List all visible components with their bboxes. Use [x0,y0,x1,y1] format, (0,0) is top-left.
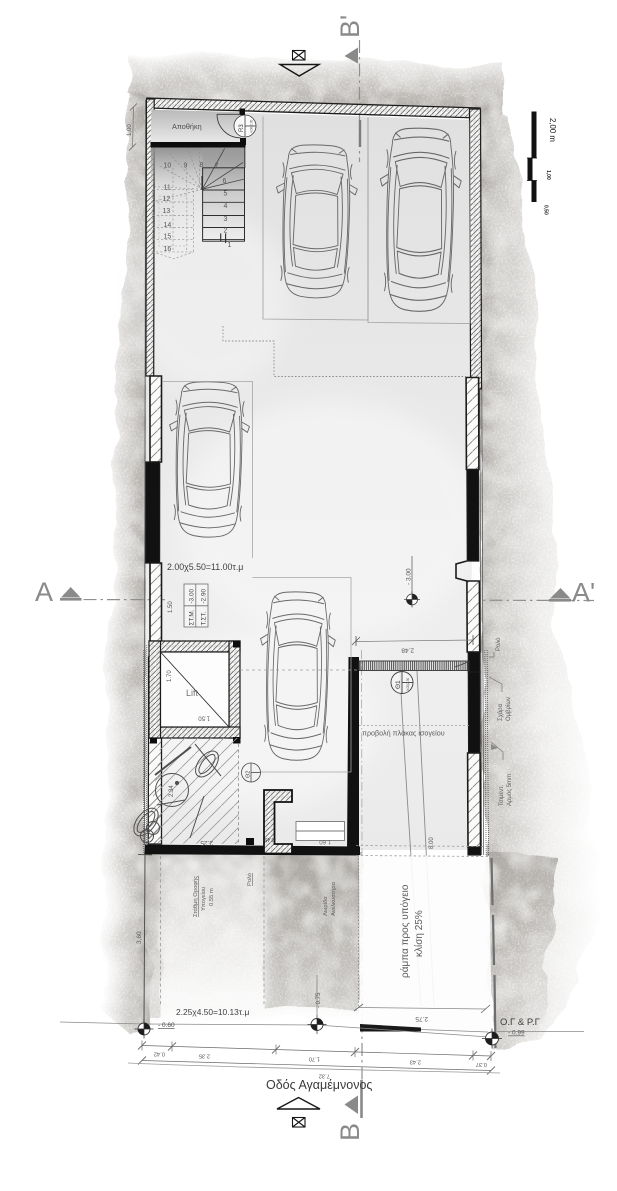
svg-text:-3.00: -3.00 [189,588,196,603]
svg-text:5: 5 [224,191,228,198]
svg-text:Τσιμεντ.: Τσιμεντ. [499,784,505,806]
svg-text:1,00: 1,00 [545,170,551,180]
svg-text:Υπογείου: Υπογείου [201,887,207,911]
svg-text:- 0.99: - 0.99 [508,1030,525,1037]
svg-text:R3: R3 [239,124,245,132]
svg-text:2.43: 2.43 [410,1059,421,1065]
svg-text:1.50: 1.50 [198,715,210,721]
svg-text:10: 10 [164,163,172,170]
svg-text:8: 8 [200,162,204,169]
svg-text:2.35: 2.35 [199,1053,210,1059]
svg-text:1.70: 1.70 [167,670,173,682]
svg-text:2,00 m: 2,00 m [548,118,557,142]
svg-text:7: 7 [215,163,219,170]
svg-text:- 3.00: - 3.00 [406,568,413,585]
svg-text:0,50: 0,50 [543,205,549,215]
svg-text:8.00: 8.00 [429,837,435,849]
svg-text:κλίση 25%: κλίση 25% [413,910,425,957]
svg-text:-0.45: -0.45 [264,836,276,842]
svg-text:2.25χ4.50=10.13τ.μ: 2.25χ4.50=10.13τ.μ [176,1007,249,1017]
svg-text:ράμπα προς υπόγειο: ράμπα προς υπόγειο [399,884,411,978]
svg-text:13: 13 [163,208,171,215]
svg-text:Ρολό: Ρολό [495,637,502,651]
svg-text:2: 2 [224,228,228,235]
svg-text:2.00χ5.50=11.00τ.μ: 2.00χ5.50=11.00τ.μ [167,562,243,572]
svg-text:Ομβρίων: Ομβρίων [506,697,512,721]
svg-text:προβολή πλάκας ισογείου: προβολή πλάκας ισογείου [362,729,445,738]
svg-text:Ρολό: Ρολό [246,873,253,886]
svg-text:15: 15 [164,234,172,241]
svg-text:14: 14 [164,222,172,229]
svg-text:Οδός Αγαμέμνονος: Οδός Αγαμέμνονος [266,1078,372,1092]
svg-text:Αποθήκη: Αποθήκη [172,122,202,131]
svg-text:0.55 m: 0.55 m [209,888,215,906]
svg-text:3: 3 [224,216,228,223]
svg-text:Lift: Lift [186,688,199,698]
svg-text:16: 16 [164,246,172,253]
svg-text:Αρμός 5mm: Αρμός 5mm [506,774,513,806]
svg-text:4: 4 [224,203,228,210]
svg-text:9: 9 [184,163,188,170]
svg-text:11: 11 [164,185,171,192]
svg-text:6: 6 [223,178,227,185]
svg-text:- 0.60: - 0.60 [158,1022,175,1029]
svg-text:Ο.Γ & Ρ.Γ: Ο.Γ & Ρ.Γ [500,1017,540,1028]
svg-text:Θ1: Θ1 [395,680,402,689]
svg-text:A': A' [572,578,595,608]
svg-text:12: 12 [163,196,171,203]
svg-text:1.50: 1.50 [168,601,174,613]
svg-text:2.25: 2.25 [200,839,213,846]
svg-text:0.37: 0.37 [476,1061,487,1067]
svg-text:3,60: 3,60 [136,931,143,944]
svg-text:Λωρίδα: Λωρίδα [323,896,329,916]
svg-text:ΣΤ.Μ.: ΣΤ.Μ. [189,609,196,625]
svg-text:2.75: 2.75 [415,1015,428,1022]
svg-text:2.34: 2.34 [169,785,175,797]
svg-text:-2.90: -2.90 [201,588,208,603]
svg-text:0.42: 0.42 [154,1051,165,1057]
svg-text:1.60: 1.60 [319,838,331,844]
svg-text:4.00|2.30: 4.00|2.30 [250,120,254,133]
svg-text:B': B' [335,15,365,38]
svg-text:Τ.ΣΤ.: Τ.ΣΤ. [201,611,208,625]
svg-text:Σχάρα: Σχάρα [497,703,504,721]
svg-text:A: A [35,577,53,607]
svg-text:Θ2: Θ2 [246,771,252,778]
svg-text:1.70: 1.70 [309,1056,320,1062]
svg-text:3.00|2.30: 3.00|2.30 [406,678,410,691]
svg-text:2.48: 2.48 [401,647,414,654]
svg-text:Στάθμη Οροφής: Στάθμη Οροφής [192,876,199,917]
svg-text:B: B [335,1123,365,1141]
svg-text:1: 1 [228,242,232,249]
svg-text:Ανελκυστήρα: Ανελκυστήρα [330,881,337,916]
svg-text:1,00: 1,00 [127,124,133,136]
